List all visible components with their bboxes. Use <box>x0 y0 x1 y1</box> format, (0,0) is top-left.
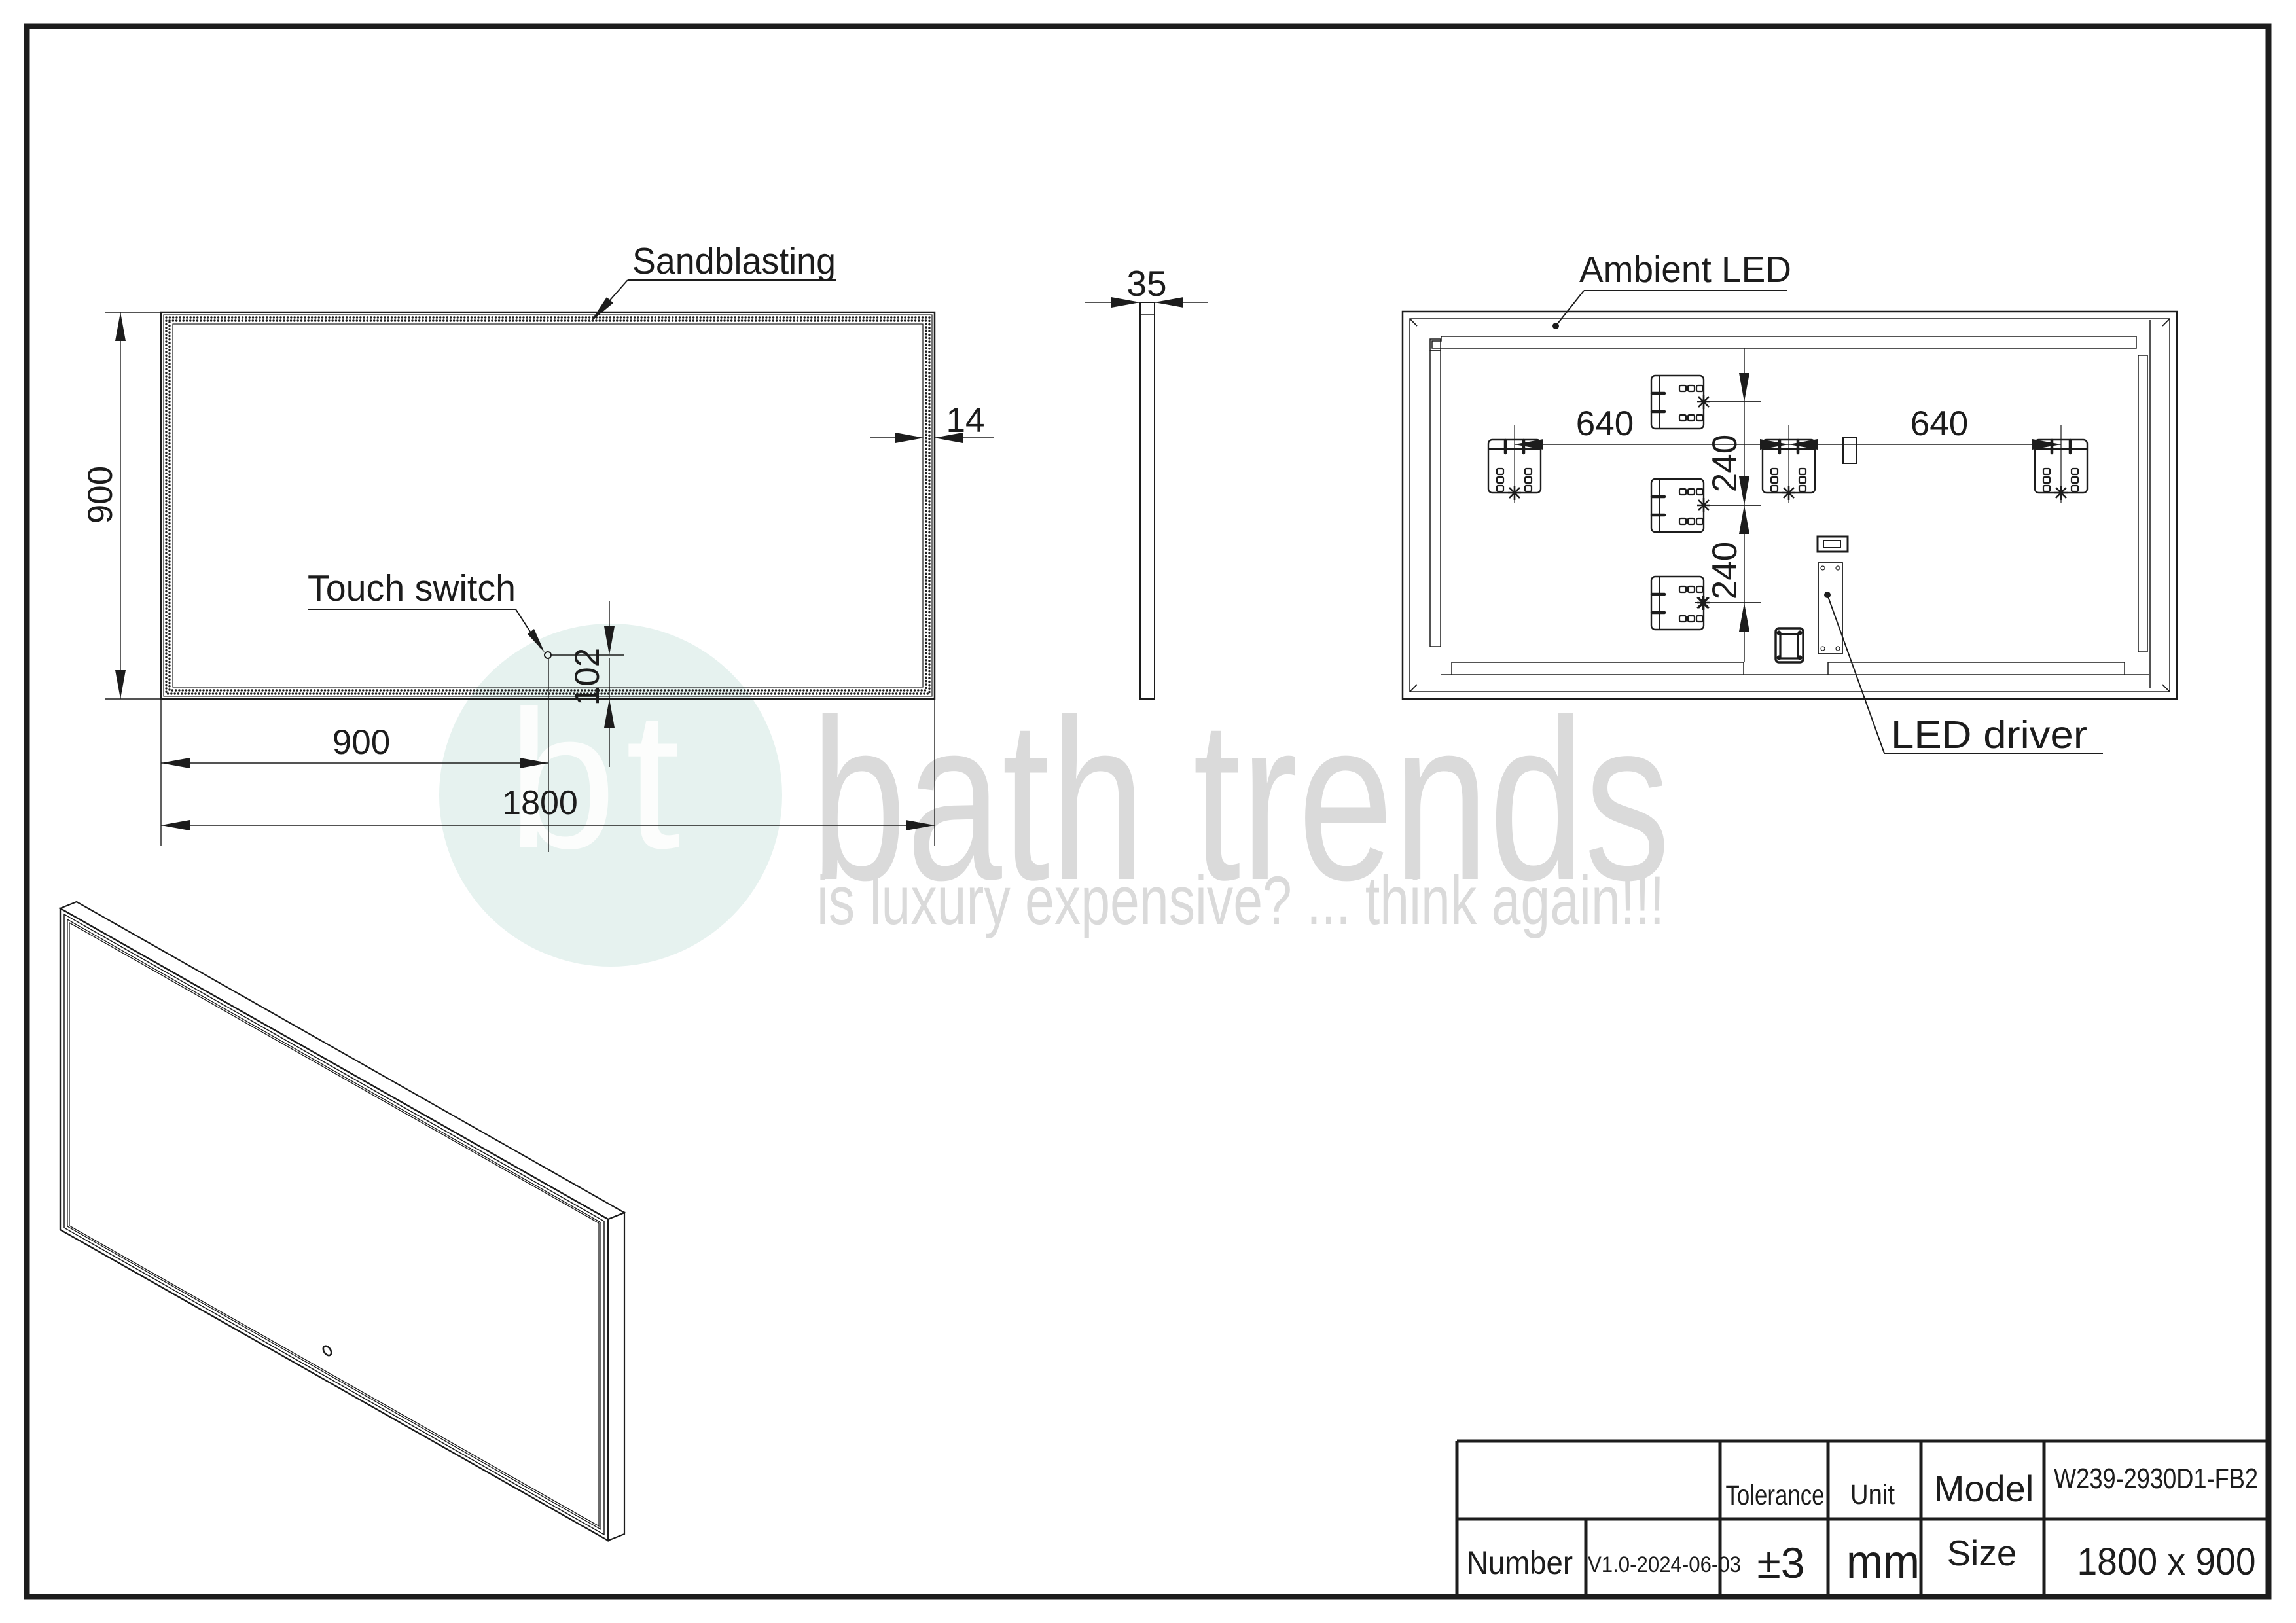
svg-text:W239-2930D1-FB2: W239-2930D1-FB2 <box>2054 1463 2258 1495</box>
svg-text:900: 900 <box>332 723 390 762</box>
svg-text:240: 240 <box>1706 435 1744 492</box>
svg-text:V1.0-2024-06-03: V1.0-2024-06-03 <box>1588 1552 1741 1577</box>
svg-text:is luxury expensive? ... think: is luxury expensive? ... think again!!! <box>817 863 1664 939</box>
svg-text:±3: ±3 <box>1757 1539 1805 1587</box>
svg-text:35: 35 <box>1126 263 1166 304</box>
svg-text:Ambient LED: Ambient LED <box>1579 249 1791 291</box>
svg-text:Sandblasting: Sandblasting <box>632 240 836 282</box>
svg-text:Number: Number <box>1467 1544 1573 1581</box>
svg-text:Touch switch: Touch switch <box>308 567 516 609</box>
svg-text:Unit: Unit <box>1850 1479 1895 1510</box>
svg-text:1800: 1800 <box>502 784 578 822</box>
svg-text:14: 14 <box>946 401 985 440</box>
svg-text:900: 900 <box>81 466 120 524</box>
svg-text:640: 640 <box>1576 404 1634 443</box>
svg-text:240: 240 <box>1706 542 1744 599</box>
svg-text:1800 x 900: 1800 x 900 <box>2077 1541 2256 1583</box>
svg-text:640: 640 <box>1910 404 1968 443</box>
svg-text:Tolerance: Tolerance <box>1726 1480 1825 1511</box>
svg-text:Model: Model <box>1934 1468 2034 1509</box>
svg-text:mm: mm <box>1846 1536 1920 1588</box>
svg-text:102: 102 <box>568 648 607 705</box>
svg-text:LED driver: LED driver <box>1891 713 2087 757</box>
svg-text:Size: Size <box>1947 1533 2017 1573</box>
